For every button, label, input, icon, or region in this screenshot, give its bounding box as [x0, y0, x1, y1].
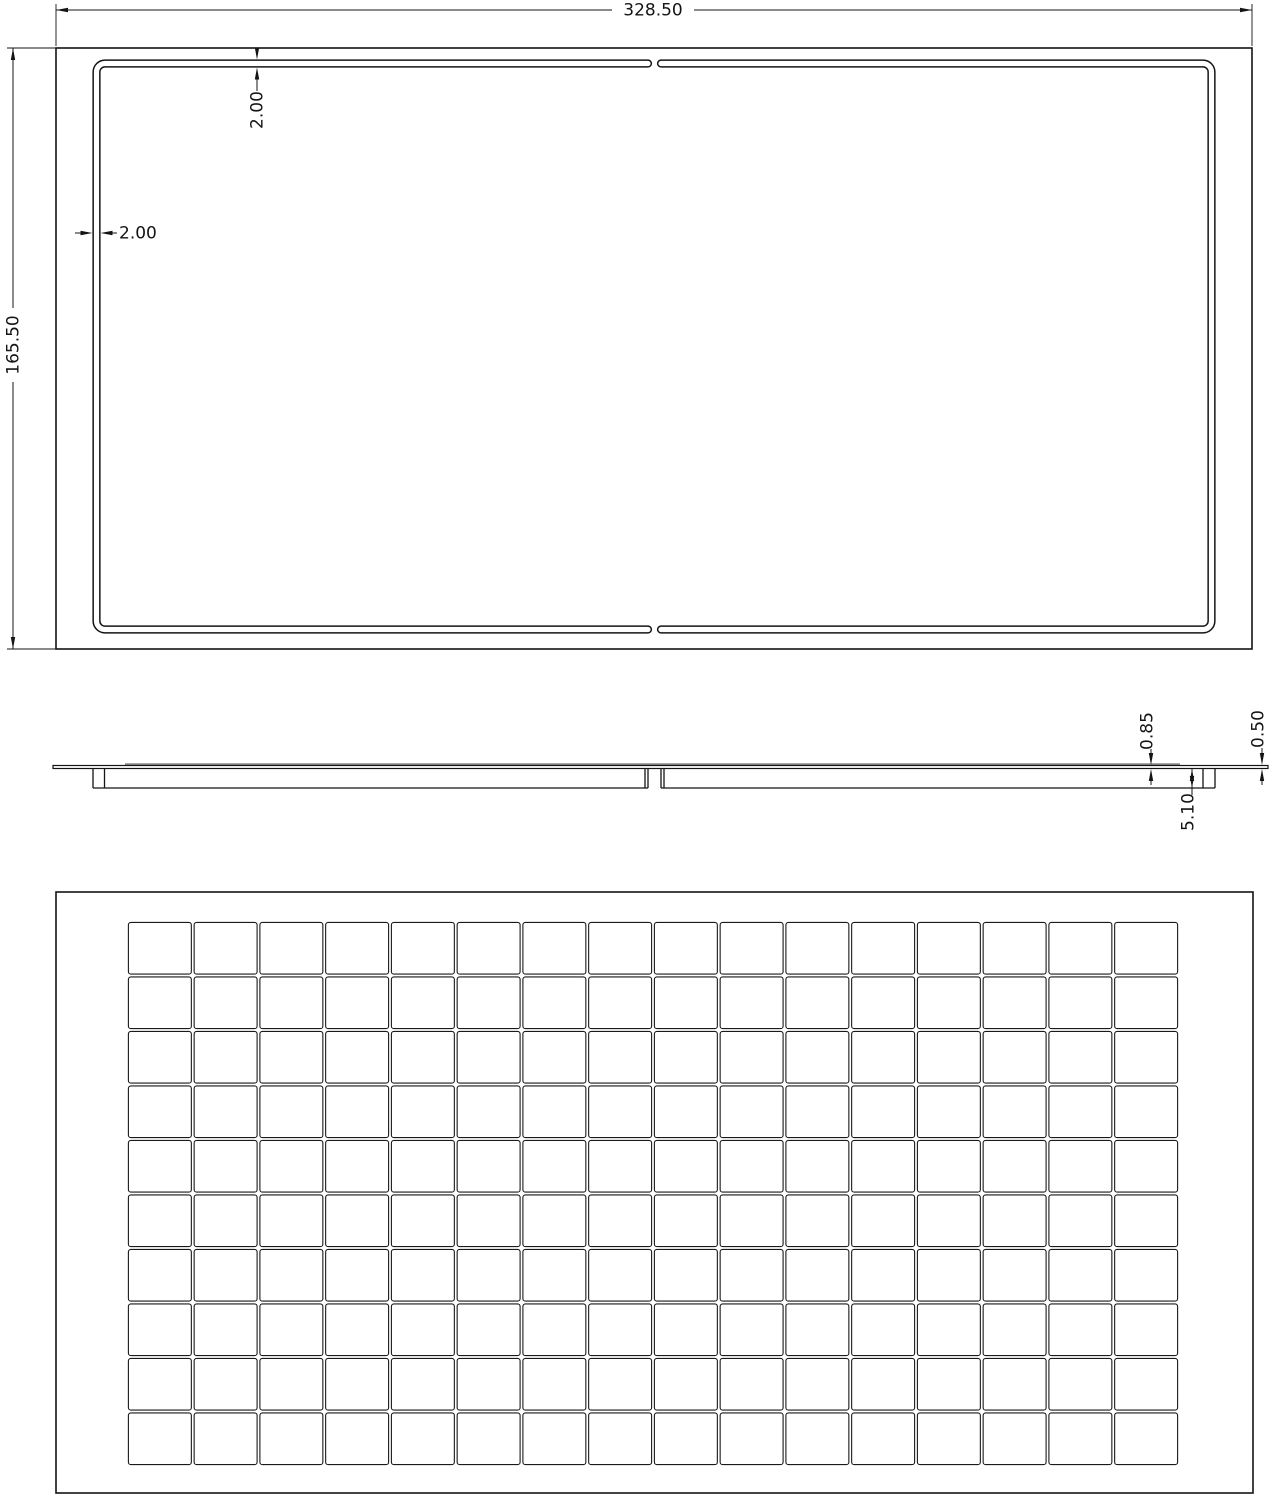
dim-rib-depth: 5.10 — [1179, 769, 1199, 831]
top-view: 328.50 165.50 2.00 2.00 — [4, 1, 1253, 650]
side-view: 0.85 5.10 0.50 — [53, 710, 1269, 831]
panel-outline — [56, 48, 1252, 649]
sheet-profile — [53, 766, 1268, 769]
arrowhead — [1149, 769, 1153, 781]
dim-overall-height: 165.50 — [4, 48, 57, 649]
arrowhead — [1190, 776, 1194, 788]
arrowhead — [56, 8, 68, 12]
arrowhead — [1260, 769, 1264, 781]
drawing-page: 328.50 165.50 2.00 2.00 — [0, 0, 1272, 1499]
dim-text-rib-depth: 5.10 — [1179, 793, 1199, 831]
dim-text-overall-width: 328.50 — [623, 1, 682, 21]
dim-text-groove-left: 2.00 — [119, 224, 157, 244]
dim-overall-width: 328.50 — [56, 1, 1252, 47]
dim-text-edge-thickness: 0.50 — [1249, 710, 1269, 748]
arrowhead — [11, 48, 15, 60]
dim-text-sheet-thickness: 0.85 — [1138, 712, 1158, 750]
technical-drawing-canvas: 328.50 165.50 2.00 2.00 — [0, 0, 1272, 1499]
grid-view — [56, 892, 1253, 1493]
dim-text-groove-top: 2.00 — [248, 91, 268, 129]
arrowhead — [1260, 753, 1264, 765]
arrowhead — [1240, 8, 1252, 12]
dim-edge-thickness: 0.50 — [1249, 710, 1269, 785]
dim-text-overall-height: 165.50 — [4, 315, 24, 374]
arrowhead — [11, 637, 15, 649]
dim-sheet-thickness: 0.85 — [1138, 712, 1158, 785]
